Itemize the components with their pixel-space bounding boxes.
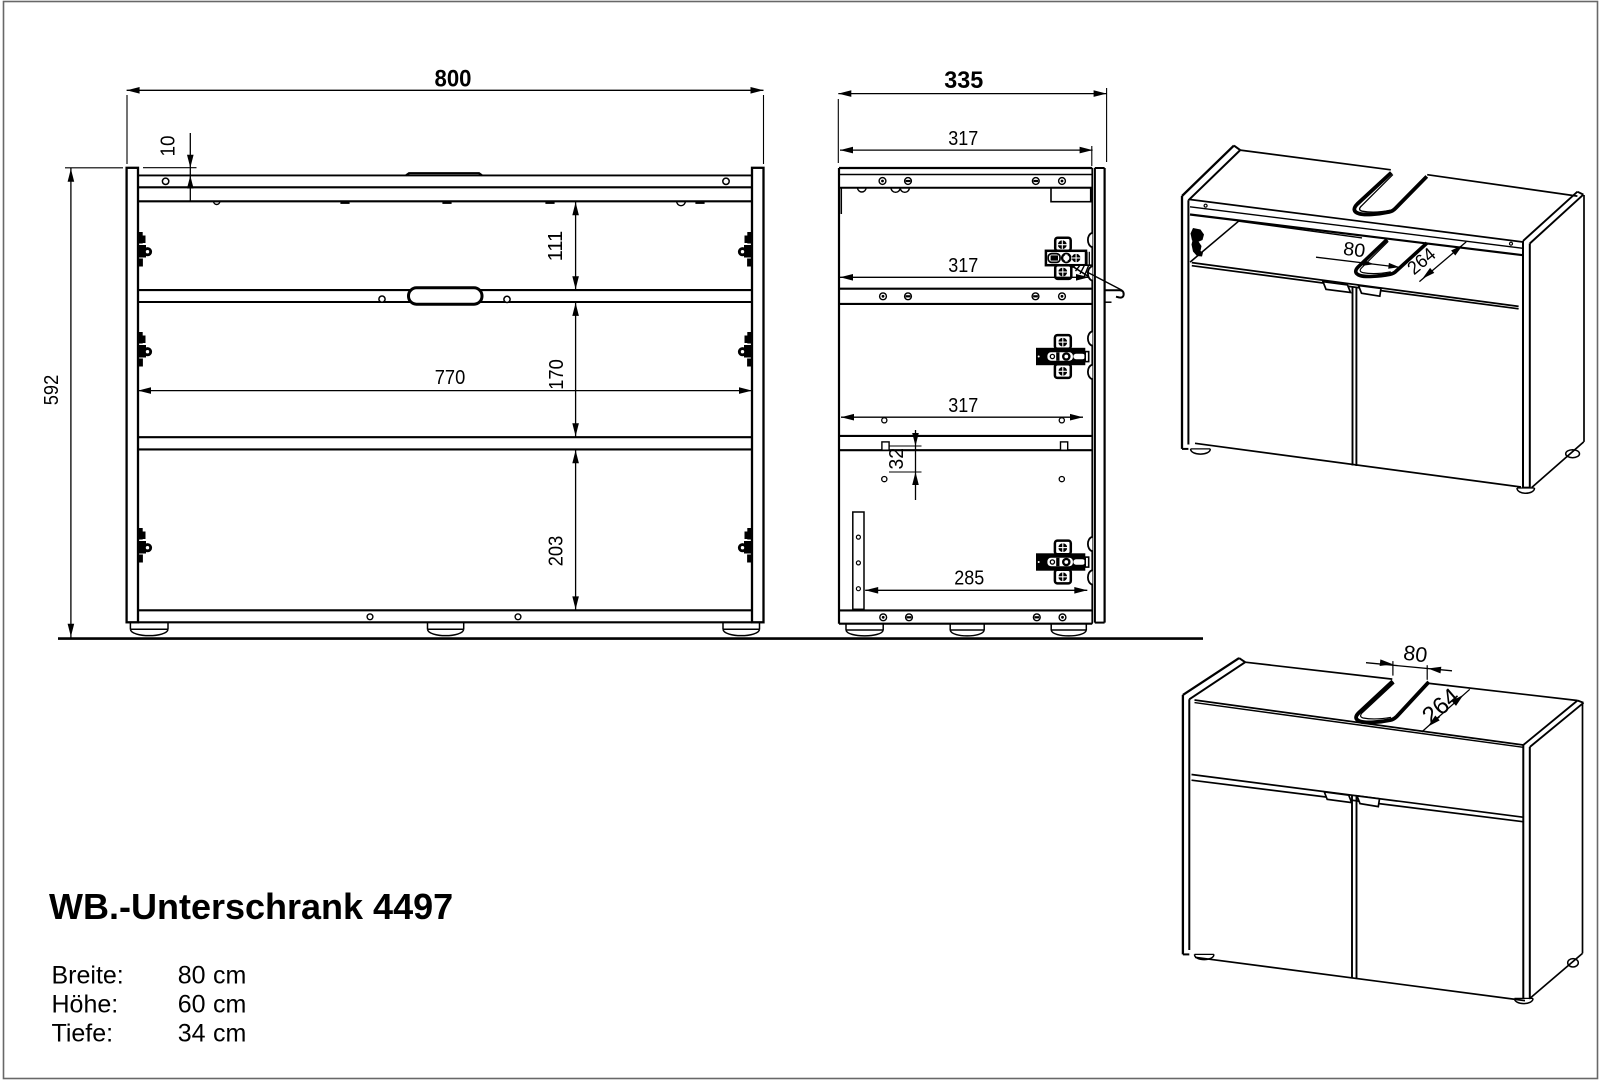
svg-text:WB.-Unterschrank 4497: WB.-Unterschrank 4497	[49, 886, 453, 927]
svg-text:592: 592	[40, 375, 63, 406]
svg-text:800: 800	[435, 66, 472, 93]
svg-text:770: 770	[435, 366, 466, 389]
svg-text:Höhe:: Höhe:	[52, 990, 119, 1018]
svg-text:cm: cm	[213, 1019, 246, 1047]
svg-text:80: 80	[178, 962, 206, 990]
svg-text:317: 317	[948, 254, 978, 277]
svg-text:60: 60	[178, 990, 206, 1018]
svg-text:34: 34	[178, 1019, 206, 1047]
svg-text:Breite:: Breite:	[52, 962, 124, 990]
svg-text:10: 10	[157, 136, 180, 157]
svg-text:203: 203	[545, 536, 568, 567]
svg-text:80: 80	[1402, 642, 1429, 668]
svg-text:Tiefe:: Tiefe:	[52, 1019, 114, 1047]
svg-text:32: 32	[885, 448, 908, 470]
svg-text:335: 335	[944, 67, 983, 94]
svg-text:cm: cm	[213, 990, 246, 1018]
svg-text:cm: cm	[213, 962, 246, 990]
svg-text:317: 317	[948, 394, 978, 417]
svg-text:111: 111	[544, 231, 567, 262]
svg-text:170: 170	[545, 359, 568, 390]
svg-text:285: 285	[954, 567, 984, 590]
svg-text:317: 317	[948, 127, 978, 150]
svg-text:80: 80	[1342, 239, 1366, 263]
